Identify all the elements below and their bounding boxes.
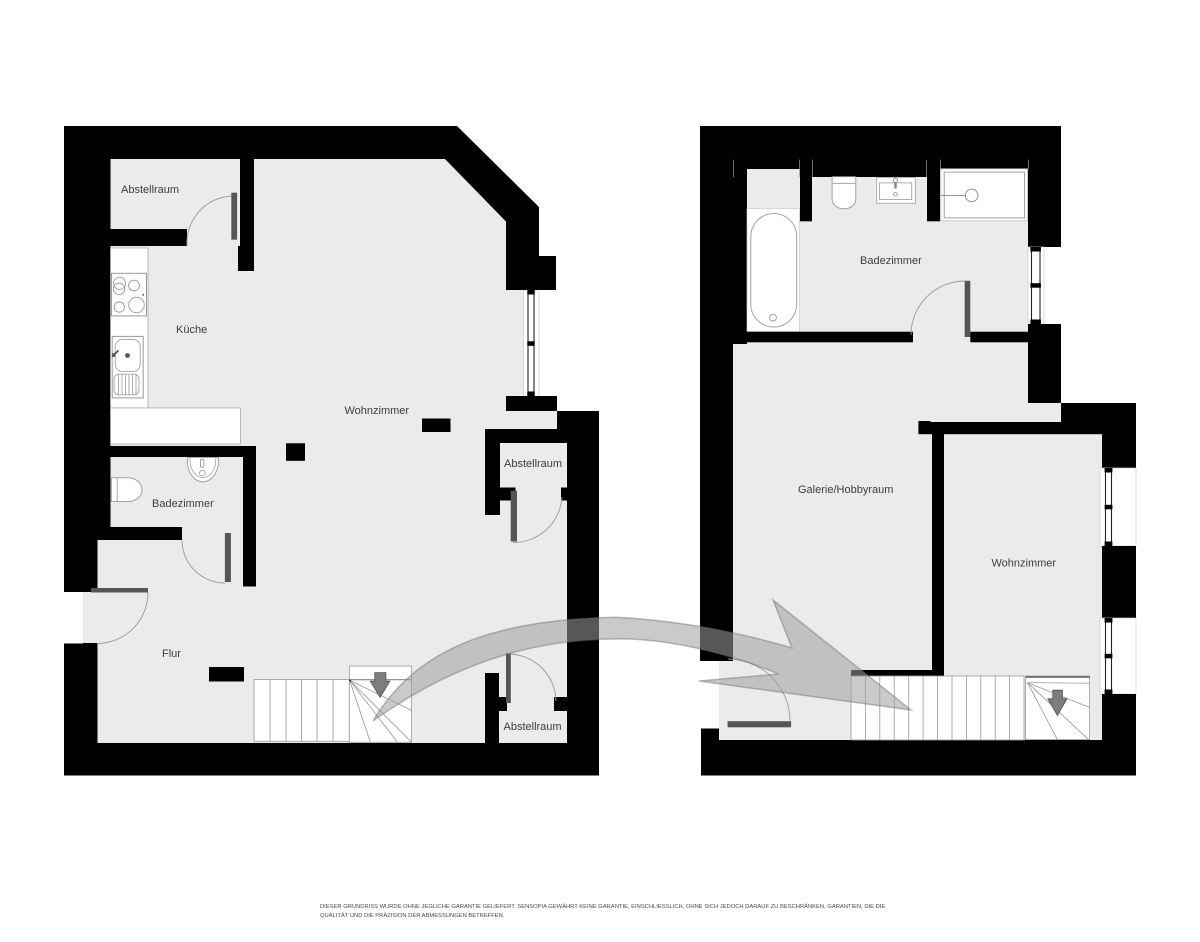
svg-text:Galerie/Hobbyraum: Galerie/Hobbyraum (798, 484, 893, 496)
svg-text:QUALITÄT UND DIE PRÄZISION DER: QUALITÄT UND DIE PRÄZISION DER ABMESSUNG… (320, 912, 505, 919)
svg-text:Badezimmer: Badezimmer (152, 498, 214, 510)
svg-text:Abstellraum: Abstellraum (504, 721, 562, 733)
svg-text:Abstellraum: Abstellraum (121, 184, 179, 196)
svg-text:DIESER GRUNDRISS WURDE OHNE JE: DIESER GRUNDRISS WURDE OHNE JEGLICHE GAR… (320, 903, 885, 910)
svg-text:Wohnzimmer: Wohnzimmer (992, 558, 1057, 570)
svg-text:Badezimmer: Badezimmer (860, 255, 922, 267)
svg-text:Abstellraum: Abstellraum (504, 458, 562, 470)
svg-text:Küche: Küche (176, 324, 207, 336)
svg-text:Wohnzimmer: Wohnzimmer (345, 405, 410, 417)
svg-text:Flur: Flur (162, 648, 181, 660)
